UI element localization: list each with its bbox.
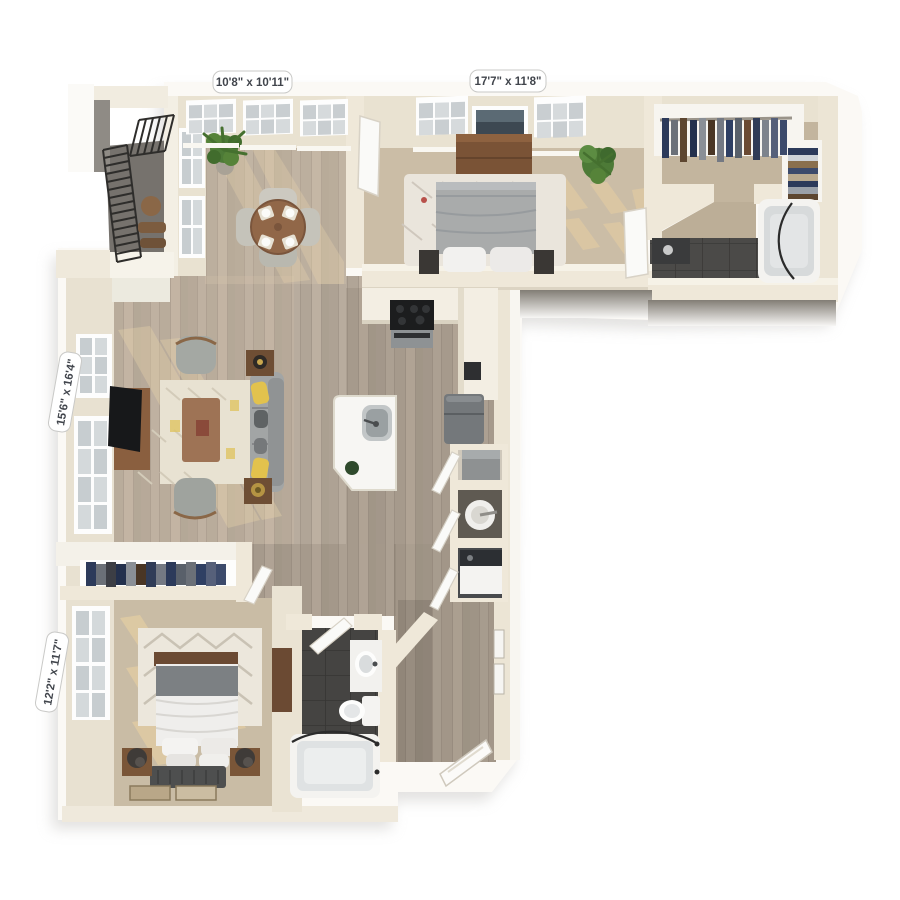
svg-text:10'8" x 10'11": 10'8" x 10'11" [216, 77, 289, 89]
svg-text:17'7" x 11'8": 17'7" x 11'8" [475, 76, 542, 88]
